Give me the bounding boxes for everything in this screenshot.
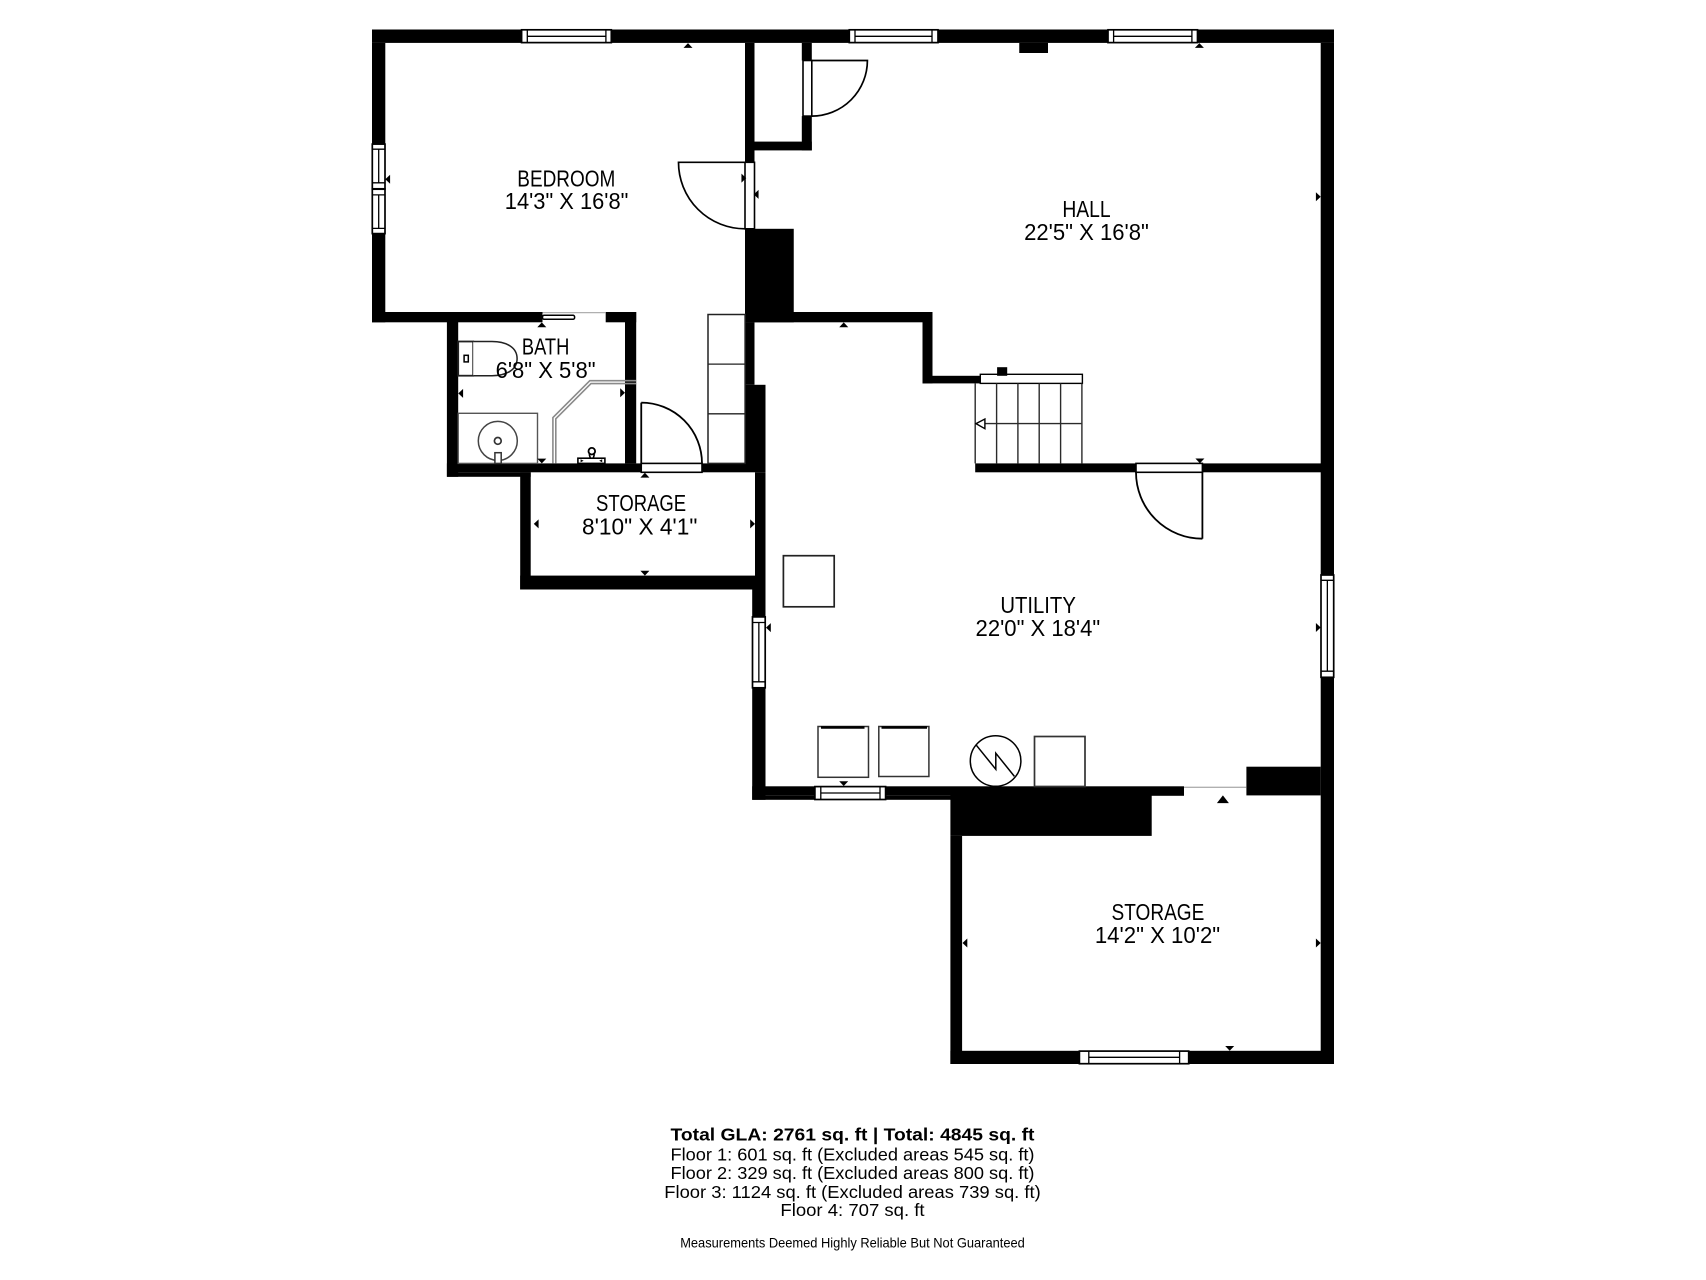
svg-text:Floor 4: 707 sq. ft: Floor 4: 707 sq. ft [780,1200,924,1220]
svg-text:Total GLA: 2761 sq. ft | Total: Total GLA: 2761 sq. ft | Total: 4845 sq.… [671,1124,1035,1144]
svg-text:8'10" X 4'1": 8'10" X 4'1" [582,513,697,539]
svg-text:14'3" X 16'8": 14'3" X 16'8" [505,188,629,214]
svg-text:BATH: BATH [522,333,570,359]
svg-text:6'8" X 5'8": 6'8" X 5'8" [496,357,596,383]
svg-text:14'2" X 10'2": 14'2" X 10'2" [1095,922,1220,948]
svg-text:STORAGE: STORAGE [596,490,686,516]
svg-text:Floor 3: 1124 sq. ft (Excluded: Floor 3: 1124 sq. ft (Excluded areas 739… [664,1182,1040,1202]
svg-text:22'0" X 18'4": 22'0" X 18'4" [976,615,1101,641]
svg-text:22'5" X 16'8": 22'5" X 16'8" [1024,219,1149,245]
svg-text:Measurements Deemed Highly Rel: Measurements Deemed Highly Reliable But … [680,1235,1025,1251]
svg-text:Floor 1: 601 sq. ft (Excluded: Floor 1: 601 sq. ft (Excluded areas 545 … [671,1145,1035,1165]
svg-text:Floor 2: 329 sq. ft (Excluded: Floor 2: 329 sq. ft (Excluded areas 800 … [671,1163,1035,1183]
